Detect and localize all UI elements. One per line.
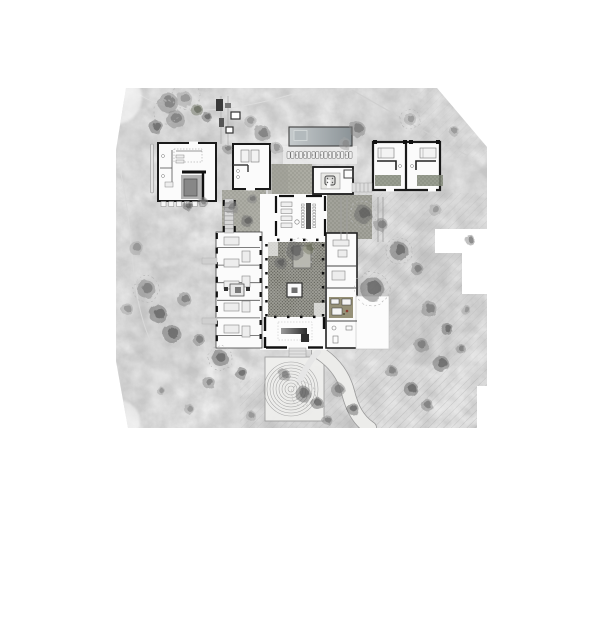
circle-shape	[154, 308, 164, 318]
wing-furniture-b	[242, 301, 250, 312]
tree	[354, 205, 372, 223]
circle-shape	[153, 122, 161, 130]
wing-wall-dash	[260, 278, 262, 283]
top-structure	[216, 99, 223, 111]
tree	[224, 200, 238, 214]
circle-shape	[367, 281, 381, 295]
wing-furniture	[224, 303, 239, 311]
hall-sofa	[281, 216, 292, 221]
column	[265, 286, 268, 289]
lounger-table	[320, 154, 322, 156]
bed-b1	[241, 150, 249, 162]
rect-shape	[338, 250, 347, 257]
lounger-table	[303, 154, 305, 156]
column	[303, 239, 306, 242]
circle-shape	[201, 199, 207, 205]
lounger	[307, 152, 310, 159]
rect-shape	[235, 287, 241, 293]
site-plan-screenshot	[0, 0, 600, 632]
column	[313, 316, 316, 319]
kitchen-accent	[346, 310, 349, 313]
rect-shape	[342, 299, 351, 305]
wing-wall-dash	[216, 291, 218, 297]
tree	[404, 113, 416, 125]
column	[316, 239, 319, 242]
tree	[322, 415, 332, 425]
bed-b2	[251, 150, 259, 162]
tree	[360, 277, 384, 301]
entry-steps	[289, 348, 306, 357]
bed-c1	[378, 148, 394, 158]
wing-wall-dash	[260, 306, 262, 311]
rect-shape	[246, 287, 250, 291]
column	[322, 286, 325, 289]
hall-sofa	[281, 223, 292, 228]
lounger-table	[295, 154, 297, 156]
circle-shape	[133, 243, 141, 251]
lounger-table	[337, 154, 339, 156]
dining-chair	[302, 210, 305, 212]
circle-shape	[168, 328, 178, 338]
circle-shape	[142, 283, 152, 293]
tree	[441, 323, 453, 335]
circle-shape	[291, 245, 301, 255]
circle-shape	[378, 220, 386, 228]
wing-furniture	[224, 259, 239, 267]
tree	[149, 120, 163, 134]
rect-shape	[234, 226, 236, 232]
circle-shape	[249, 413, 255, 419]
circle-shape	[432, 206, 439, 213]
tree	[129, 241, 143, 255]
freestanding-wall	[151, 144, 154, 193]
circle-shape	[250, 196, 256, 202]
tree	[202, 112, 212, 122]
column	[265, 244, 268, 247]
tree	[193, 334, 205, 346]
circle-shape	[238, 369, 245, 376]
tree	[166, 110, 184, 128]
circle-shape	[426, 304, 435, 313]
column	[322, 244, 325, 247]
circle-shape	[452, 128, 458, 134]
tree	[347, 403, 359, 415]
wing-wall-dash	[216, 277, 218, 283]
circle-shape	[159, 388, 164, 393]
column	[290, 239, 293, 242]
rect-shape	[176, 160, 184, 163]
dining-chair	[302, 204, 305, 206]
hall-sofa	[281, 209, 292, 214]
tree	[275, 257, 287, 269]
rect-shape	[477, 386, 488, 428]
pool-steps	[294, 131, 307, 141]
circle-shape	[408, 384, 416, 392]
circle-shape	[464, 307, 470, 313]
threshold	[202, 318, 217, 324]
lounger	[316, 152, 319, 159]
column	[277, 239, 280, 242]
circle-shape	[281, 371, 288, 378]
dining-chair	[313, 213, 316, 215]
dining-chair	[313, 207, 316, 209]
fountain-basin	[292, 288, 298, 294]
living-block	[301, 334, 309, 342]
tree	[176, 91, 192, 107]
tree	[349, 121, 365, 137]
lounger	[349, 152, 352, 159]
column	[322, 314, 325, 317]
circle-shape	[438, 359, 447, 368]
circle-shape	[388, 367, 395, 374]
circle-shape	[354, 124, 363, 133]
terrace	[356, 296, 389, 349]
dining-chair	[313, 223, 316, 225]
circle-shape	[181, 94, 190, 103]
dining-table	[306, 203, 311, 229]
wing-wall-dash	[260, 236, 262, 241]
living-bar	[281, 328, 307, 334]
planter	[169, 202, 174, 207]
circle-shape	[325, 417, 331, 423]
tree	[429, 204, 441, 216]
kitchen-counter	[331, 299, 339, 304]
dining-chair	[302, 216, 305, 218]
tree	[246, 411, 256, 421]
steps-to-twin	[352, 183, 372, 192]
circle-shape	[343, 313, 345, 315]
circle-shape	[327, 182, 328, 183]
circle-shape	[206, 379, 213, 386]
circle-shape	[186, 203, 192, 209]
column	[265, 300, 268, 303]
circle-shape	[332, 182, 333, 183]
tree	[203, 377, 215, 389]
tree	[244, 115, 256, 127]
circle-shape	[244, 217, 251, 224]
tree	[385, 365, 397, 377]
courtyard-path-nw	[268, 242, 278, 256]
circle-shape	[335, 385, 343, 393]
tree	[303, 242, 315, 254]
column	[274, 316, 277, 319]
rect-shape	[435, 229, 488, 253]
dining-chair	[313, 204, 316, 206]
site-plan-svg	[0, 0, 600, 632]
column	[287, 316, 290, 319]
rect-shape	[375, 175, 401, 186]
circle-shape	[96, 400, 140, 444]
rect-shape	[417, 175, 443, 186]
circle-shape	[273, 144, 280, 151]
planter	[161, 202, 166, 207]
threshold	[202, 258, 217, 264]
door-gap	[428, 188, 436, 192]
wing-furniture-b	[242, 251, 250, 262]
circle-shape	[278, 259, 285, 266]
rect-shape	[462, 252, 488, 294]
door-gap	[189, 142, 198, 146]
bed-c2	[420, 148, 436, 158]
lounger	[287, 152, 290, 159]
tree	[223, 144, 233, 154]
lounger	[332, 152, 335, 159]
dining-chair	[302, 220, 305, 222]
sofa-r	[333, 240, 349, 246]
wing-furniture	[224, 237, 239, 245]
wing-wall-dash	[216, 248, 218, 254]
tree	[212, 350, 228, 366]
dining-chair	[313, 216, 316, 218]
tree	[404, 382, 418, 396]
tree	[191, 104, 203, 116]
door-gap	[386, 188, 394, 192]
tree	[183, 201, 193, 211]
lounger-table	[345, 154, 347, 156]
tree	[177, 292, 191, 306]
circle-shape	[247, 117, 254, 124]
wing-wall-dash	[216, 306, 218, 312]
planter	[177, 202, 182, 207]
circle-shape	[350, 405, 357, 412]
circle-shape	[259, 128, 268, 137]
tree	[331, 383, 345, 397]
circle-shape	[181, 294, 189, 302]
tree	[449, 126, 459, 136]
wing-wall-dash	[260, 292, 262, 297]
lounger-table	[312, 154, 314, 156]
column	[300, 316, 303, 319]
circle-shape	[332, 178, 333, 179]
circle-shape	[217, 353, 226, 362]
column	[265, 272, 268, 275]
rect-shape	[226, 127, 233, 133]
wing-wall-dash	[260, 334, 262, 339]
twin-post	[409, 140, 413, 144]
lounger	[324, 152, 327, 159]
scene-root	[90, 64, 516, 473]
column	[322, 258, 325, 261]
circle-shape	[306, 244, 313, 251]
hall-sofa	[281, 202, 292, 207]
tree	[270, 142, 282, 154]
circle-shape	[468, 237, 474, 243]
circle-shape	[194, 106, 201, 113]
dining-chair	[302, 223, 305, 225]
rect-shape	[176, 155, 184, 158]
dining-chair	[302, 207, 305, 209]
wing-wall-dash	[260, 320, 262, 325]
column	[322, 300, 325, 303]
tree	[456, 344, 466, 354]
tree	[411, 263, 423, 275]
tree	[247, 194, 257, 204]
tree	[184, 404, 194, 414]
tree	[278, 369, 290, 381]
lounger	[291, 152, 294, 159]
tree	[157, 387, 165, 395]
circle-shape	[424, 401, 431, 408]
tree	[461, 305, 471, 315]
spa-bed	[184, 179, 197, 196]
circle-shape	[407, 115, 414, 122]
tree	[149, 305, 167, 323]
tree	[286, 242, 304, 260]
tree	[421, 399, 433, 411]
wing-wall-dash	[216, 335, 218, 341]
tree	[235, 367, 247, 379]
tree	[241, 215, 253, 227]
circle-shape	[459, 346, 465, 352]
tree	[121, 303, 133, 315]
rect-shape	[231, 112, 240, 119]
twin-post	[403, 140, 407, 144]
tree	[311, 397, 323, 409]
tree	[339, 138, 351, 150]
column	[322, 272, 325, 275]
circle-shape	[444, 325, 451, 332]
rect-shape	[165, 182, 173, 187]
circle-shape	[205, 114, 211, 120]
tree	[198, 197, 208, 207]
rect-shape	[224, 287, 228, 291]
twin-post	[436, 140, 440, 144]
circle-shape	[228, 202, 236, 210]
wing-wall-dash	[260, 250, 262, 255]
rect-shape	[332, 308, 342, 315]
tree	[254, 125, 270, 141]
tree	[295, 386, 311, 402]
circle-shape	[300, 389, 309, 398]
circle-shape	[342, 140, 349, 147]
circle-shape	[124, 305, 131, 312]
circle-shape	[196, 336, 203, 343]
wing-furniture-b	[242, 326, 250, 337]
tree	[433, 356, 449, 372]
rect-shape	[223, 226, 225, 232]
circle-shape	[90, 72, 142, 124]
circle-shape	[395, 245, 405, 255]
circle-shape	[456, 64, 516, 124]
dining-chair	[313, 210, 316, 212]
dining-chair	[313, 226, 316, 228]
wing-furniture	[224, 325, 239, 333]
dining-chair	[302, 213, 305, 215]
door-gap	[327, 180, 331, 188]
lounger-table	[328, 154, 330, 156]
entry-fountain-dot	[327, 178, 328, 179]
rect-shape	[225, 103, 231, 108]
circle-shape	[187, 406, 193, 412]
circle-shape	[226, 146, 232, 152]
tree	[414, 338, 428, 352]
lounger	[299, 152, 302, 159]
bed-r	[332, 271, 345, 280]
door-gap	[246, 187, 255, 191]
circle-shape	[314, 399, 321, 406]
rect-shape	[219, 118, 224, 127]
tree	[421, 301, 437, 317]
column	[265, 314, 268, 317]
lounger	[341, 152, 344, 159]
circle-shape	[414, 265, 421, 272]
tree	[390, 242, 408, 260]
tree	[374, 218, 388, 232]
circle-shape	[110, 210, 190, 290]
dining-chair	[313, 220, 316, 222]
twin-post	[373, 140, 377, 144]
wing-wall-dash	[216, 233, 218, 239]
column	[265, 258, 268, 261]
tree	[163, 325, 181, 343]
tree	[137, 280, 155, 298]
dining-chair	[302, 226, 305, 228]
circle-shape	[418, 340, 426, 348]
tree	[465, 235, 475, 245]
circle-shape	[359, 208, 369, 218]
